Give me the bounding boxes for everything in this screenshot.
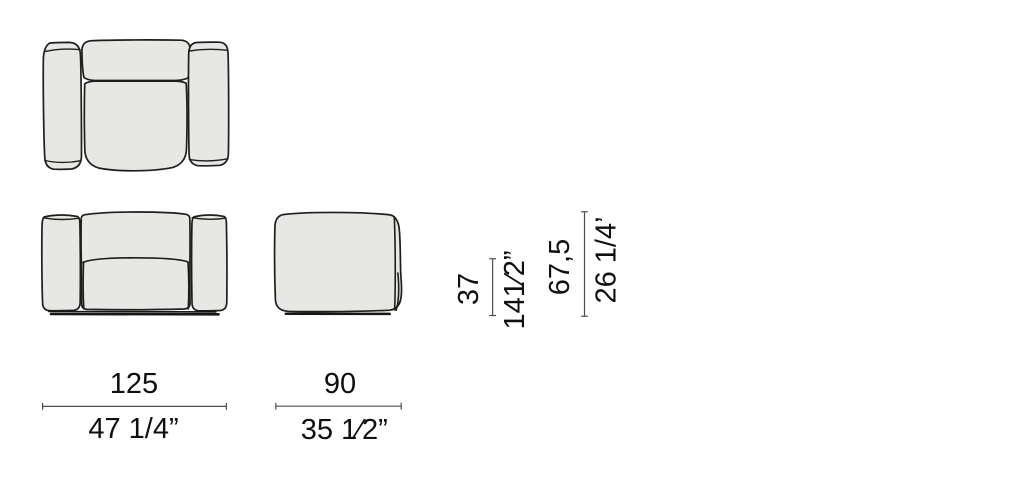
svg-text:35 1⁄2”: 35 1⁄2” [301, 414, 388, 446]
svg-text:26 1/4’: 26 1/4’ [591, 216, 623, 303]
svg-text:67,5: 67,5 [544, 239, 576, 295]
svg-text:125: 125 [110, 368, 158, 400]
svg-text:37: 37 [453, 273, 485, 305]
svg-text:90: 90 [324, 368, 356, 400]
svg-text:47 1/4”: 47 1/4” [88, 413, 178, 445]
svg-text:141⁄2”: 141⁄2” [499, 250, 531, 329]
